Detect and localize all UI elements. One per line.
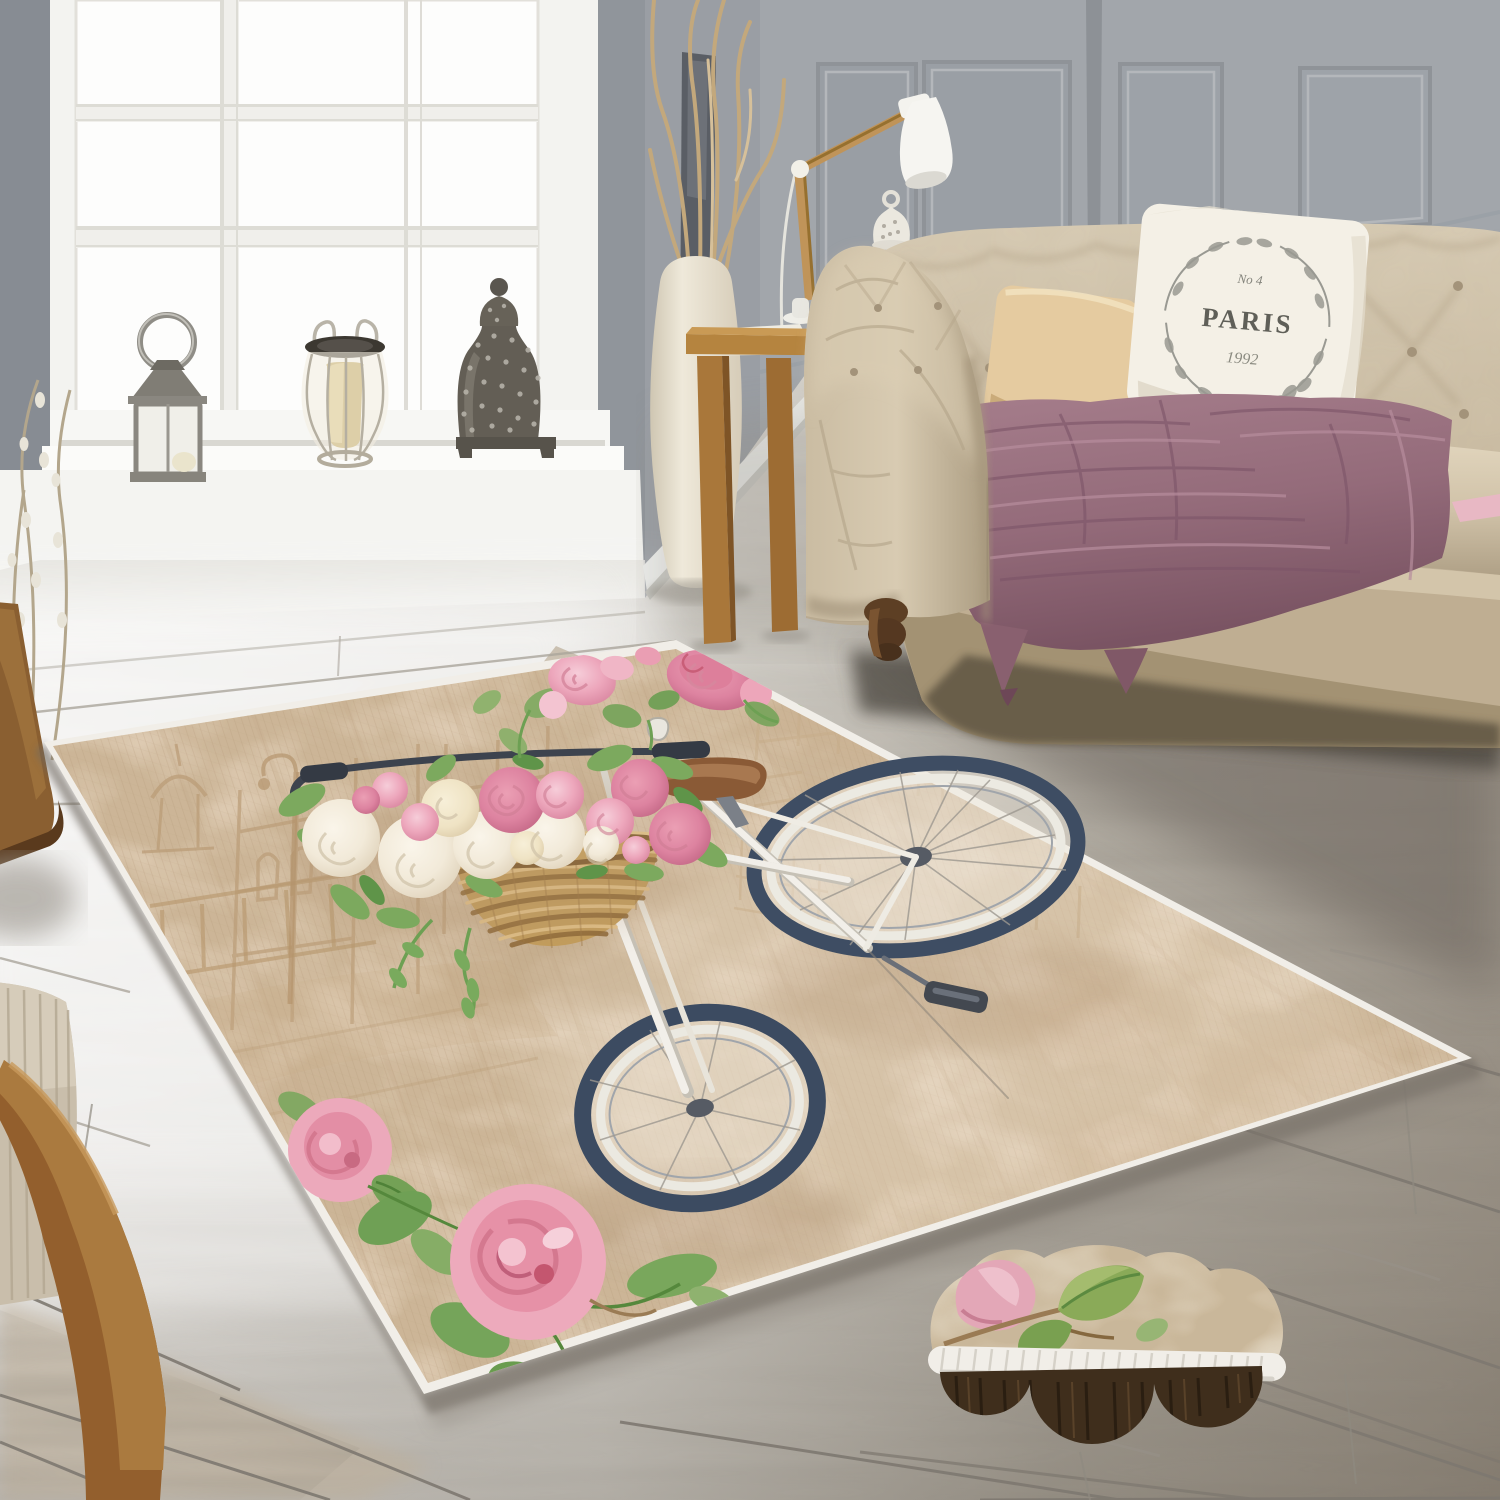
svg-text:1992: 1992 xyxy=(1225,349,1258,369)
svg-text:No 4: No 4 xyxy=(1236,271,1264,288)
